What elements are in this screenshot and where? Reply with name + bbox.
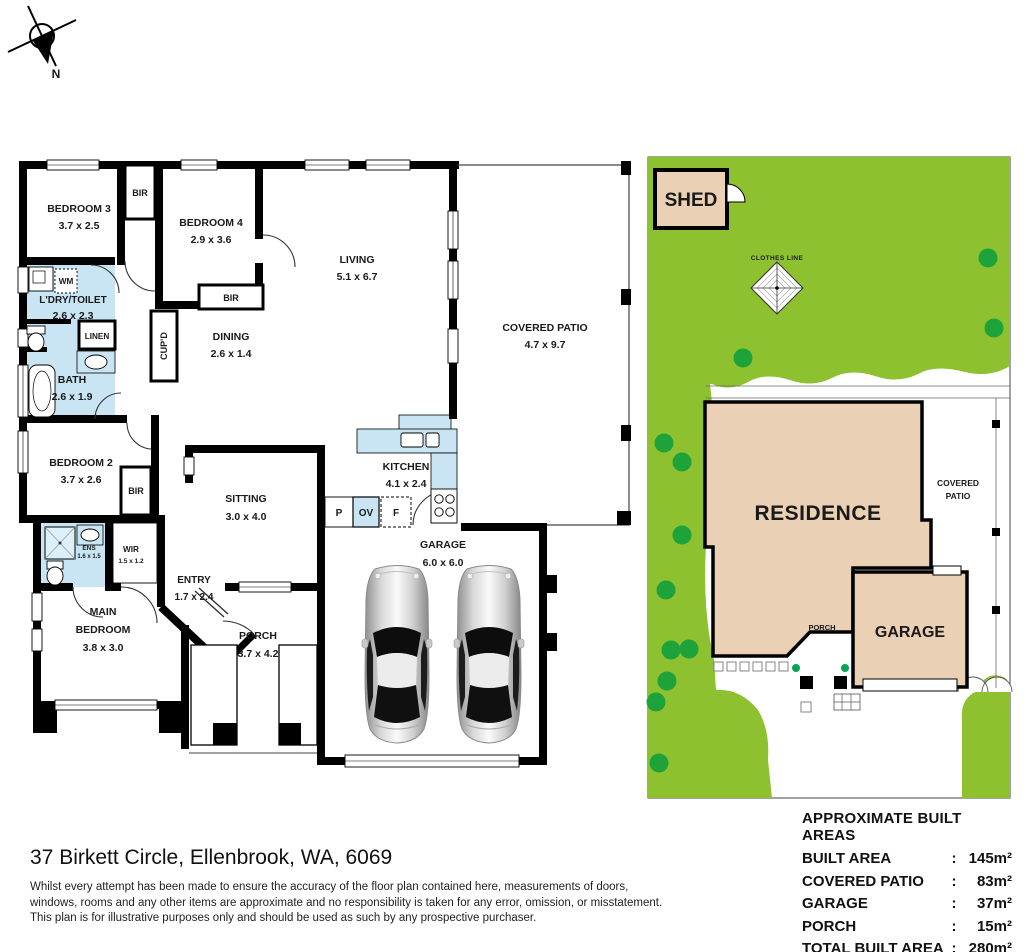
site-covered-patio-label-2: PATIO — [946, 491, 971, 501]
room-dims-entry: 1.7 x 2.4 — [175, 592, 214, 603]
area-label: PORCH — [802, 916, 948, 939]
room-dims-bedroom-3: 3.7 x 2.5 — [59, 220, 100, 232]
site-garage-label: GARAGE — [875, 624, 946, 641]
area-separator: : — [948, 848, 960, 871]
room-label-garage: GARAGE — [420, 539, 466, 551]
room-label-main-bedroom-1: MAIN — [90, 606, 117, 618]
area-row-total: TOTAL BUILT AREA:280m² — [802, 938, 1012, 952]
shed-label: SHED — [665, 190, 718, 211]
room-dims-covered-patio: 4.7 x 9.7 — [525, 339, 566, 351]
room-label-ens: ENS — [82, 545, 96, 552]
compass-north-label: N — [52, 67, 61, 81]
area-row-built-area: BUILT AREA:145m² — [802, 848, 1012, 871]
area-row-covered-patio: COVERED PATIO:83m² — [802, 871, 1012, 894]
room-dims-living: 5.1 x 6.7 — [337, 271, 378, 283]
room-label-bedroom-3: BEDROOM 3 — [47, 203, 111, 215]
compass-icon: N — [8, 6, 76, 81]
address-title: 37 Birkett Circle, Ellenbrook, WA, 6069 — [30, 846, 392, 870]
room-label-covered-patio: COVERED PATIO — [502, 322, 587, 334]
site-porch-label: PORCH — [808, 623, 835, 632]
porch-piers — [189, 645, 317, 753]
disclaimer-line-3: This plan is for illustrative purposes o… — [30, 911, 662, 927]
room-label-bedroom-4: BEDROOM 4 — [179, 217, 243, 229]
room-label-dining: DINING — [213, 331, 250, 343]
floorplan-page: N — [0, 0, 1024, 952]
room-label-porch: PORCH — [239, 630, 277, 642]
area-label: BUILT AREA — [802, 848, 948, 871]
bir-label-bedroom-2: BIR — [128, 486, 144, 496]
area-value: 83m² — [960, 871, 1012, 894]
room-label-kitchen: KITCHEN — [383, 461, 430, 473]
area-value: 15m² — [960, 916, 1012, 939]
area-separator: : — [948, 916, 960, 939]
area-label: COVERED PATIO — [802, 871, 948, 894]
room-dims-ens: 1.6 x 1.5 — [77, 554, 101, 560]
room-label-bedroom-2: BEDROOM 2 — [49, 457, 113, 469]
disclaimer-text: Whilst every attempt has been made to en… — [30, 880, 662, 927]
room-label-living: LIVING — [339, 254, 374, 266]
site-garage: GARAGE — [853, 566, 967, 691]
area-value: 37m² — [960, 893, 1012, 916]
clothes-line-label: CLOTHES LINE — [751, 255, 804, 262]
bir-label-bedroom-3: BIR — [132, 188, 148, 198]
car-top-view — [362, 566, 524, 744]
room-dims-porch: 3.7 x 4.2 — [238, 648, 279, 660]
fridge-label: F — [393, 508, 399, 519]
disclaimer-line-1: Whilst every attempt has been made to en… — [30, 880, 662, 896]
room-dims-laundry: 2.6 x 2.3 — [53, 310, 94, 322]
room-dims-kitchen: 4.1 x 2.4 — [386, 478, 427, 490]
area-separator: : — [948, 893, 960, 916]
cupd-label: CUP'D — [159, 332, 169, 360]
plans-canvas: N — [0, 0, 1024, 805]
room-dims-garage: 6.0 x 6.0 — [423, 557, 464, 569]
area-row-garage: GARAGE:37m² — [802, 893, 1012, 916]
built-areas-table: APPROXIMATE BUILT AREAS BUILT AREA:145m²… — [802, 810, 1012, 952]
room-dims-wir: 1.5 x 1.2 — [118, 558, 144, 565]
room-dims-bath: 2.6 x 1.9 — [52, 391, 93, 403]
room-label-entry: ENTRY — [177, 575, 211, 586]
linen-label: LINEN — [85, 332, 110, 341]
area-label: GARAGE — [802, 893, 948, 916]
site-plan: SHED CLOTHES LINE RESIDENCE GARAGE COVER… — [647, 157, 1013, 798]
room-label-sitting: SITTING — [225, 493, 266, 505]
floor-plan: BEDROOM 3 3.7 x 2.5 BEDROOM 4 2.9 x 3.6 … — [18, 160, 631, 767]
room-dims-main-bedroom: 3.8 x 3.0 — [83, 642, 124, 654]
room-label-main-bedroom-2: BEDROOM — [76, 624, 131, 636]
bir-label-bedroom-4: BIR — [223, 293, 239, 303]
area-separator: : — [948, 938, 960, 952]
area-value: 280m² — [960, 938, 1012, 952]
pantry-label: P — [336, 508, 343, 519]
built-areas-title: APPROXIMATE BUILT AREAS — [802, 810, 1012, 844]
room-dims-bedroom-2: 3.7 x 2.6 — [61, 474, 102, 486]
residence-label: RESIDENCE — [754, 502, 881, 525]
room-dims-bedroom-4: 2.9 x 3.6 — [191, 234, 232, 246]
room-dims-dining: 2.6 x 1.4 — [211, 348, 252, 360]
area-value: 145m² — [960, 848, 1012, 871]
area-separator: : — [948, 871, 960, 894]
wm-label: WM — [59, 277, 74, 286]
room-label-laundry: L'DRY/TOILET — [39, 295, 106, 306]
site-covered-patio-label-1: COVERED — [937, 478, 979, 488]
room-dims-sitting: 3.0 x 4.0 — [226, 511, 267, 523]
room-label-wir: WIR — [123, 545, 139, 554]
oven-label: OV — [359, 508, 374, 519]
room-label-bath: BATH — [58, 374, 86, 386]
area-row-porch: PORCH:15m² — [802, 916, 1012, 939]
disclaimer-line-2: windows, rooms and any other items are a… — [30, 896, 662, 912]
area-label: TOTAL BUILT AREA — [802, 938, 948, 952]
